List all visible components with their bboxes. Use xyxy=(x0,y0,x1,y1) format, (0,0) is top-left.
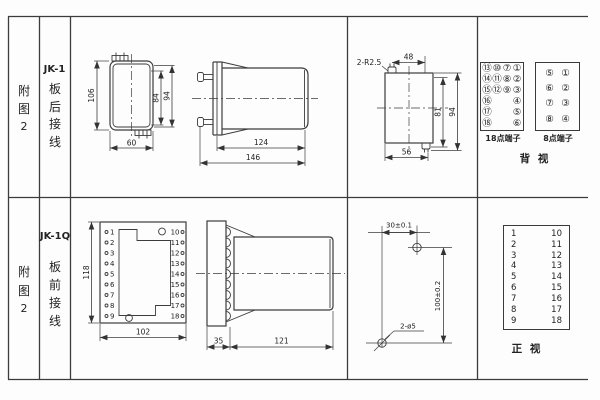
terminal-18: ⑮ xyxy=(482,86,492,96)
row1-wiring-char: 后 xyxy=(40,101,70,114)
jk1-front-width-dim: 60 xyxy=(127,139,137,148)
plate-pin-label: 12 xyxy=(171,250,180,258)
terminal-18: ⑤ xyxy=(512,108,522,118)
plate-pin-label: 9 xyxy=(110,313,114,321)
jk1q-plate-view: 1 2 3 4 5 6 7 8 9 10 11 12 13 14 15 16 1… xyxy=(82,222,186,341)
row2-fig-char: 图 xyxy=(9,285,39,298)
plate-pin-label: 16 xyxy=(171,292,180,300)
terminal-18 xyxy=(492,97,502,107)
plate-pin-label: 2 xyxy=(110,239,114,247)
front-terminal-number: 14 xyxy=(551,273,562,282)
front-terminal-number: 4 xyxy=(511,262,516,271)
front-terminal-number: 17 xyxy=(551,306,562,315)
terminal-box-8: ⑤① ⑥② ⑦③ ⑧④ xyxy=(535,62,580,131)
terminal-18 xyxy=(502,108,512,118)
jk1-front-inner-height-dim: 84 xyxy=(152,93,161,103)
plate-pin-label: 6 xyxy=(110,281,115,289)
plate-pin-label: 17 xyxy=(171,302,180,310)
terminal-box-18-label: 18点端子 xyxy=(484,133,522,144)
terminal-8: ⑤ xyxy=(545,69,555,79)
terminal-box-18: ⑬⑩⑦① ⑭⑪⑧② ⑮⑫⑨③ ⑯④ ⑰⑤ ⑱⑥ xyxy=(480,62,524,131)
row1-fig-num: 2 xyxy=(9,120,39,133)
terminal-8: ⑦ xyxy=(545,99,555,109)
jk1q-plate-width-dim: 102 xyxy=(136,328,151,337)
terminal-8: ⑧ xyxy=(545,115,555,125)
plate-pin-label: 1 xyxy=(110,229,114,237)
jk1-front-height-dim: 106 xyxy=(87,88,96,103)
plate-pin-label: 10 xyxy=(171,229,180,237)
front-terminal-number: 1 xyxy=(511,230,516,239)
terminal-18: ⑬ xyxy=(482,64,492,74)
front-terminal-number: 6 xyxy=(511,284,516,293)
jk1-front-view: 106 60 84 94 xyxy=(87,53,175,152)
front-terminal-number: 5 xyxy=(511,273,516,282)
row2-wiring-char: 接 xyxy=(40,297,70,310)
terminal-18 xyxy=(502,97,512,107)
terminal-8: ③ xyxy=(561,99,571,109)
plate-pin-label: 7 xyxy=(110,292,114,300)
terminal-18: ⑦ xyxy=(502,64,512,74)
terminal-18: ⑥ xyxy=(512,119,522,129)
terminal-8: ④ xyxy=(561,115,571,125)
plate-pin-label: 4 xyxy=(110,260,115,268)
terminal-18 xyxy=(492,119,502,129)
row2-wiring-char: 线 xyxy=(40,315,70,328)
terminal-18: ② xyxy=(512,75,522,85)
plate-pin-label: 13 xyxy=(171,260,180,268)
jk1q-holes-vertical-dim: 100±0.2 xyxy=(434,281,442,311)
terminal-18: ⑨ xyxy=(502,86,512,96)
plate-pin-label: 8 xyxy=(110,302,114,310)
terminal-box-8-label: 8点端子 xyxy=(539,133,577,144)
row1-fig-char: 图 xyxy=(9,103,39,116)
front-table-left-column: 1 2 3 4 5 6 7 8 9 xyxy=(511,230,516,325)
terminal-18: ⑧ xyxy=(502,75,512,85)
plate-pin-label: 11 xyxy=(171,239,180,247)
jk1q-side-body-length-dim: 121 xyxy=(274,337,289,346)
terminal-18: ④ xyxy=(512,97,522,107)
row1-wiring-char: 接 xyxy=(40,118,70,131)
front-terminal-number: 9 xyxy=(511,317,516,326)
jk1-side-total-length-dim: 146 xyxy=(246,153,261,162)
front-terminal-number: 2 xyxy=(511,241,516,250)
row2-model-label: JK-1Q xyxy=(39,230,71,243)
jk1-front-outer-height-dim: 94 xyxy=(163,91,172,101)
row2-fig-char: 附 xyxy=(9,266,39,279)
terminal-18 xyxy=(502,119,512,129)
plate-pin-label: 18 xyxy=(171,313,180,321)
terminal-8: ② xyxy=(561,84,571,94)
jk1-cutout-inner-height-dim: 81 xyxy=(434,107,443,117)
front-terminal-number: 3 xyxy=(511,252,516,261)
front-terminal-number: 18 xyxy=(551,317,562,326)
front-terminal-table: 1 2 3 4 5 6 7 8 9 10 11 12 13 14 15 16 1… xyxy=(503,225,570,330)
front-terminal-number: 15 xyxy=(551,284,562,293)
front-terminal-number: 12 xyxy=(551,252,562,261)
row2-fig-num: 2 xyxy=(9,302,39,315)
jk1q-holes-note: 2-ø5 xyxy=(400,323,416,331)
jk1q-side-view: 35 121 xyxy=(196,221,345,350)
front-terminal-number: 11 xyxy=(551,241,562,250)
row2-wiring-char: 前 xyxy=(40,279,70,292)
terminal-18: ⑩ xyxy=(492,64,502,74)
terminal-18: ① xyxy=(512,64,522,74)
front-terminal-number: 16 xyxy=(551,295,562,304)
terminal-18: ⑱ xyxy=(482,119,492,129)
row1-wiring-char: 板 xyxy=(40,83,70,96)
terminal-18: ⑯ xyxy=(482,97,492,107)
jk1q-side-plate-depth-dim: 35 xyxy=(214,337,224,346)
terminal-18: ③ xyxy=(512,86,522,96)
jk1q-holes-view: 30±0.1 100±0.2 2-ø5 xyxy=(366,222,452,352)
jk1q-plate-height-dim: 118 xyxy=(82,265,91,280)
front-table-right-column: 10 11 12 13 14 15 16 17 18 xyxy=(551,230,562,325)
jk1-side-view: 124 146 xyxy=(192,62,318,166)
row2-wiring-char: 板 xyxy=(40,261,70,274)
front-terminal-number: 13 xyxy=(551,262,562,271)
jk1-cutout-outer-height-dim: 94 xyxy=(448,107,457,117)
jk1-cutout-bottom-width-dim: 56 xyxy=(402,148,412,157)
technical-drawing-page: 106 60 84 94 124 146 xyxy=(0,0,600,400)
jk1-cutout-top-width-dim: 48 xyxy=(404,53,414,62)
drawing-canvas: 106 60 84 94 124 146 xyxy=(0,0,600,400)
terminal-18: ⑭ xyxy=(482,75,492,85)
terminal-8: ⑥ xyxy=(545,84,555,94)
jk1-side-body-length-dim: 124 xyxy=(254,138,269,147)
terminal-18: ⑪ xyxy=(492,75,502,85)
front-terminal-number: 8 xyxy=(511,306,516,315)
jk1-cutout-radius-note: 2-R2.5 xyxy=(357,58,382,67)
jk1-cutout-view: 2-R2.5 48 81 94 56 xyxy=(357,53,462,162)
terminal-18: ⑰ xyxy=(482,108,492,118)
row1-wiring-char: 线 xyxy=(40,136,70,149)
terminal-8: ① xyxy=(561,69,571,79)
rear-view-label: 背 视 xyxy=(504,151,566,166)
front-terminal-number: 7 xyxy=(511,295,516,304)
jk1q-holes-horizontal-dim: 30±0.1 xyxy=(386,222,412,230)
plate-pin-label: 14 xyxy=(171,271,180,279)
terminal-18: ⑫ xyxy=(492,86,502,96)
plate-pin-label: 15 xyxy=(171,281,180,289)
row1-fig-char: 附 xyxy=(9,85,39,98)
plate-pin-label: 3 xyxy=(110,250,114,258)
plate-pin-label: 5 xyxy=(110,271,114,279)
front-view-label: 正 视 xyxy=(492,341,562,356)
row1-model-label: JK-1 xyxy=(39,63,70,76)
terminal-18 xyxy=(492,108,502,118)
front-terminal-number: 10 xyxy=(551,230,562,239)
